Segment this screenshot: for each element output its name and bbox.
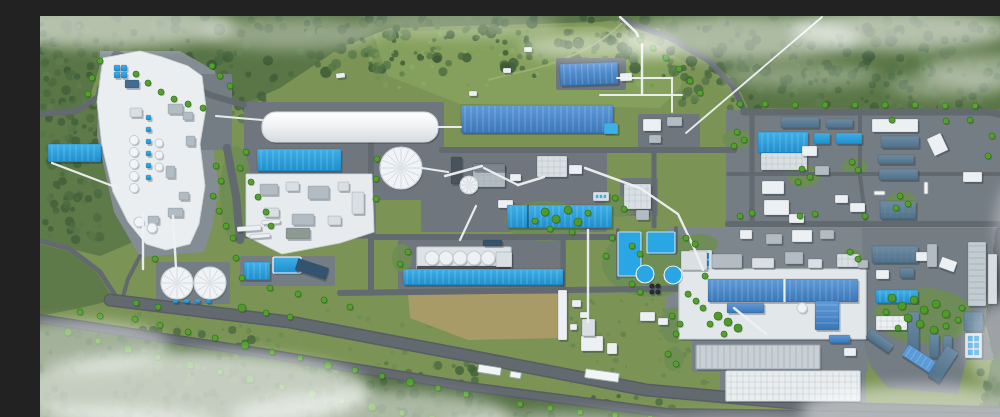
- bldg-park-white-7: [850, 203, 867, 214]
- bldg-north-pad-bldg-2: [667, 117, 684, 128]
- bldg-rc-north-2: [752, 258, 776, 270]
- grass-patch-14: [392, 244, 412, 272]
- bldg-floor-machine-1: [260, 184, 280, 197]
- bldg-floor-machine-3: [308, 186, 331, 201]
- bldg-rc-blue-low: [815, 301, 841, 332]
- bldg-floor-machine-8: [352, 192, 366, 216]
- bldg-floor-machine-2: [286, 182, 301, 193]
- bldg-plant-machine-7: [130, 108, 144, 119]
- bldg-north-pad-bldg-3: [649, 135, 663, 145]
- bldg-plant-machine-1: [168, 104, 185, 116]
- bldg-park-white-6: [835, 195, 850, 205]
- bldg-br-slate-small: [900, 268, 916, 280]
- bldg-floor-machine-4: [338, 182, 351, 193]
- bldg-park-blue-annex-2: [836, 133, 864, 146]
- bldg-plant-machine-8: [179, 192, 191, 202]
- bldg-br-slate-vert-2: [930, 334, 941, 360]
- bldg-blue-hall-north: [560, 62, 620, 88]
- bldg-field-edge-bldg: [558, 290, 569, 342]
- bldg-floor-machine-6: [292, 214, 316, 227]
- bldg-south-shed-1: [640, 312, 657, 323]
- bldg-plant-machine-5: [168, 208, 185, 219]
- truck-2: [510, 371, 522, 379]
- bldg-solar-mini: [483, 240, 504, 248]
- bldg-park-slate-2: [826, 119, 855, 130]
- bldg-pond-square: [647, 232, 677, 255]
- bldg-br-white-3: [876, 270, 891, 281]
- bldg-rc-blue-roof: [708, 279, 860, 304]
- bldg-mill-shed-small: [569, 165, 584, 176]
- bldg-park-gray-1: [815, 166, 831, 177]
- truck-4: [874, 191, 885, 195]
- bldg-north-pad-bldg-1: [643, 119, 663, 133]
- bldg-south-cluster-2: [607, 343, 619, 356]
- site-map-canvas: [40, 16, 1000, 417]
- bldg-br-gray-tall-2: [988, 254, 999, 306]
- bldg-park-white-1: [872, 119, 920, 134]
- bldg-park-blue-annex-1: [814, 133, 832, 146]
- bldg-blue-warehouse-west: [48, 144, 103, 164]
- bldg-rc-blue-shed: [829, 335, 852, 345]
- bldg-rc-row-1: [766, 234, 784, 246]
- bldg-br-gray-vert: [927, 244, 939, 269]
- bldg-plant-panel-dark: [125, 80, 141, 90]
- bldg-big-blue-hall: [461, 105, 615, 135]
- bldg-south-cluster-1: [581, 336, 605, 353]
- bldg-rc-north-1: [712, 254, 744, 270]
- fog-patch-7: [720, 64, 880, 88]
- bldg-rc-ribbed-hall: [696, 345, 822, 371]
- bldg-blue-hall-center: [257, 149, 343, 173]
- bldg-long-blue-hall: [403, 269, 565, 287]
- bldg-park-slate-5: [879, 169, 920, 182]
- bldg-mill-shed-ne: [537, 156, 569, 179]
- bldg-park-white-3: [762, 181, 786, 196]
- bldg-plant-machine-2: [183, 112, 195, 122]
- bldg-silo-house-annex: [496, 252, 514, 269]
- bldg-cyan-cell-shed: [593, 192, 611, 203]
- bldg-south-shed-2: [658, 318, 670, 327]
- bldg-br-slate-hall: [872, 246, 920, 265]
- bldg-rc-row-2: [792, 230, 814, 244]
- bldg-rc-north-4: [808, 259, 824, 270]
- bldg-rc-row-4: [740, 230, 754, 241]
- grass-patch-10: [664, 347, 684, 371]
- bldg-park-slate-1: [781, 117, 821, 130]
- bldg-rc-row-3: [820, 230, 836, 241]
- bldg-br-gray-tall-1: [968, 242, 988, 308]
- bldg-park-white-4: [764, 200, 791, 217]
- bldg-park-white-8: [963, 172, 984, 184]
- bldg-park-slate-4: [878, 155, 916, 166]
- bldg-plant-machine-4: [186, 136, 197, 148]
- bldg-big-blue-annex: [604, 123, 620, 136]
- bldg-ribbed-gray-annex: [636, 210, 651, 222]
- bldg-blue-shed-sw-1: [244, 262, 272, 282]
- bldg-park-slate-3: [881, 136, 921, 150]
- bldg-gray-slab: [286, 228, 312, 241]
- industrial-site-map: [40, 16, 1000, 417]
- bldg-br-white-4: [844, 348, 858, 358]
- bldg-rc-annex-nw: [681, 251, 709, 272]
- bldg-floor-machine-7: [328, 216, 343, 227]
- bldg-conveyor-tower-base: [582, 319, 597, 338]
- fog-patch-8: [885, 74, 1000, 98]
- bldg-plant-machine-3: [166, 166, 177, 180]
- bldg-park-inner-shed: [802, 146, 819, 158]
- fog-patch-1: [200, 18, 380, 50]
- bldg-blue-hall-mid: [507, 205, 614, 230]
- bldg-rc-blue-strip: [727, 303, 766, 315]
- truck-5: [924, 182, 928, 194]
- bldg-rc-north-3: [785, 252, 805, 266]
- bldg-barrel-warehouse: [262, 112, 440, 144]
